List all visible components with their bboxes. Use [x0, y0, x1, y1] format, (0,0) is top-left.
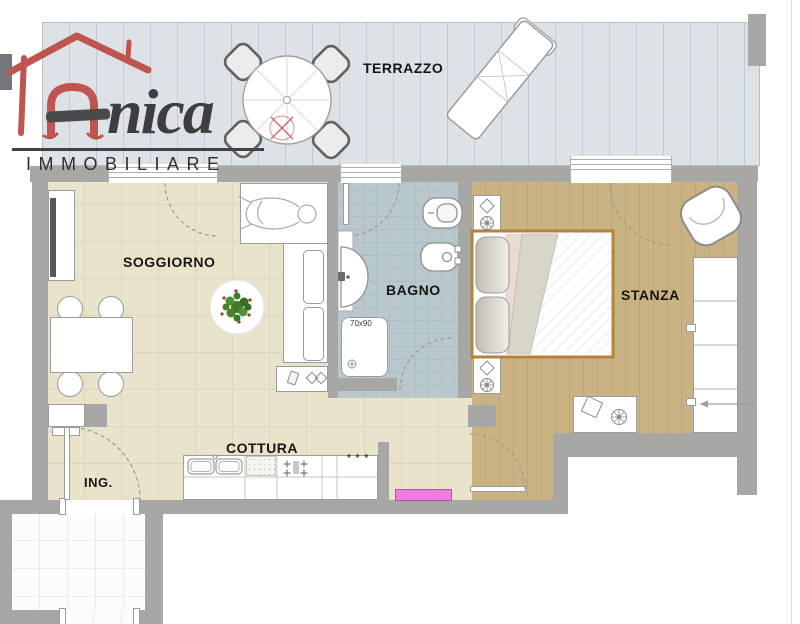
label-stanza: STANZA: [621, 287, 680, 303]
south-wall-seg1: [0, 500, 64, 514]
bedroom-wall-south: [553, 433, 740, 457]
brand-subtitle: IMMOBILIARE: [26, 154, 227, 175]
floorplan-sheet: TERRAZZO SOGGIORNO BAGNO STANZA COTTURA …: [0, 0, 800, 624]
kitchen-wall-stub: [378, 442, 389, 500]
label-shower-size: 70x90: [350, 319, 372, 328]
tv-panel: [50, 198, 56, 277]
bedroom-wall-connector: [553, 457, 568, 500]
bedroom-window: [570, 156, 672, 183]
door-jamb: [59, 608, 66, 624]
entry-wall-stub: [85, 404, 107, 427]
label-bagno: BAGNO: [386, 282, 441, 298]
label-soggiorno: SOGGIORNO: [123, 254, 215, 270]
bedroom-door-leaf: [470, 486, 526, 492]
sofa-cushion: [303, 307, 324, 361]
nightstand: [473, 356, 501, 394]
dining-chair: [98, 371, 124, 397]
wardrobe-handle: [686, 324, 696, 332]
stair-door-opening-bottom: [66, 610, 133, 624]
sofa-cushion: [303, 250, 324, 304]
entry-closet: [48, 404, 85, 427]
south-wall-seg2: [140, 500, 568, 514]
stairwell-floor: [12, 514, 145, 624]
brand-name-script: nica: [107, 80, 213, 144]
dining-table: [50, 317, 133, 373]
west-wall: [32, 166, 48, 514]
label-terrazzo: TERRAZZO: [363, 60, 443, 76]
nightstand: [473, 195, 501, 233]
stair-wall-west: [0, 514, 12, 624]
freezer-symbol: * * *: [347, 453, 369, 464]
brand-underline: [12, 148, 264, 151]
desk: [573, 396, 637, 433]
bath-wall-west: [328, 182, 338, 398]
label-cottura: COTTURA: [226, 440, 298, 456]
chaise-lounge: [240, 183, 328, 244]
north-wall-seg3: [402, 166, 570, 182]
bath-wall-south: [325, 378, 397, 391]
stair-wall-east: [145, 514, 163, 624]
corridor-pillar: [468, 405, 496, 427]
terrace-wall-stub-right: [748, 14, 766, 66]
east-wall: [737, 166, 757, 495]
bath-wall-east: [458, 182, 472, 398]
bathroom-terrace-door-leaf: [343, 183, 349, 225]
door-jamb: [133, 498, 140, 515]
sheet-border-line: [791, 0, 792, 624]
radiator: [395, 489, 452, 501]
door-jamb: [133, 608, 140, 624]
wardrobe-handle: [686, 398, 696, 406]
dining-chair: [57, 371, 83, 397]
bathroom-window: [340, 164, 402, 183]
label-ingresso: ING.: [84, 475, 113, 490]
coffee-table: [276, 366, 328, 392]
wardrobe: [693, 257, 738, 433]
brand-logo: nica IMMOBILIARE: [4, 14, 280, 184]
door-jamb: [59, 498, 66, 515]
kitchen-worktop: [246, 456, 276, 476]
entrance-door-leaf: [64, 427, 70, 500]
